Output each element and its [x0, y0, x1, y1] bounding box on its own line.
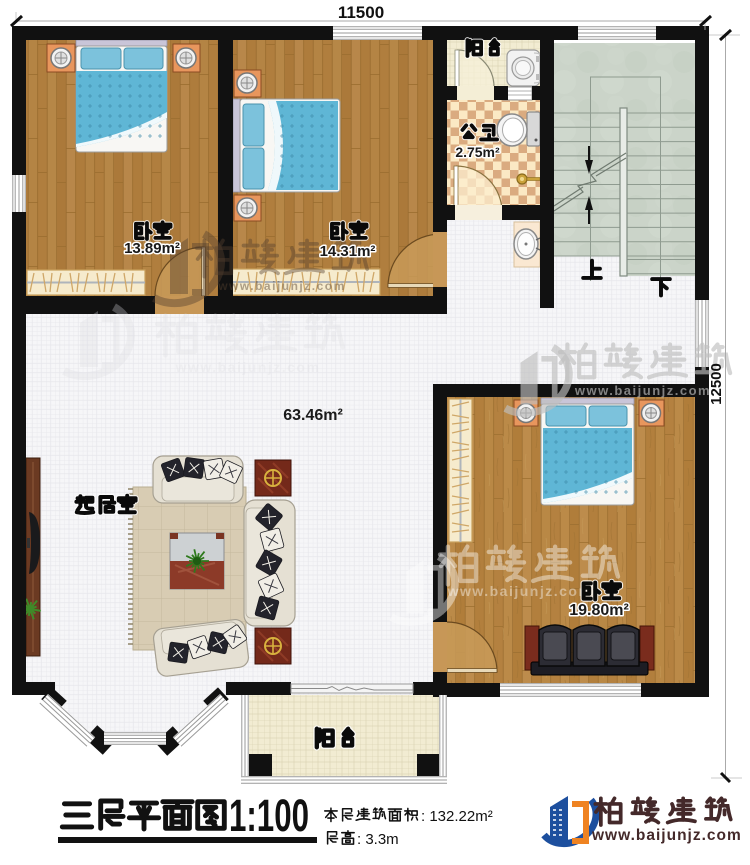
svg-text:11500: 11500 [338, 3, 384, 22]
svg-text:13.89m²: 13.89m² [124, 240, 180, 257]
svg-text:2.75m²: 2.75m² [455, 144, 500, 160]
svg-text:www.baijunjz.com: www.baijunjz.com [574, 383, 711, 398]
svg-text:www.baijunjz.com: www.baijunjz.com [217, 279, 346, 293]
svg-text:: 3.3m: : 3.3m [357, 831, 399, 848]
svg-text:www.baijunjz.com: www.baijunjz.com [591, 827, 742, 844]
svg-text:19.80m²: 19.80m² [569, 602, 629, 619]
svg-text:14.31m²: 14.31m² [320, 243, 376, 260]
svg-text:1:100: 1:100 [229, 790, 309, 841]
svg-text:www.baijunjz.com: www.baijunjz.com [175, 359, 321, 375]
svg-text:: 132.22m²: : 132.22m² [421, 808, 493, 825]
svg-text:63.46m²: 63.46m² [283, 407, 343, 424]
svg-text:12500: 12500 [708, 363, 725, 405]
svg-text:www.baijunjz.com: www.baijunjz.com [447, 583, 593, 599]
